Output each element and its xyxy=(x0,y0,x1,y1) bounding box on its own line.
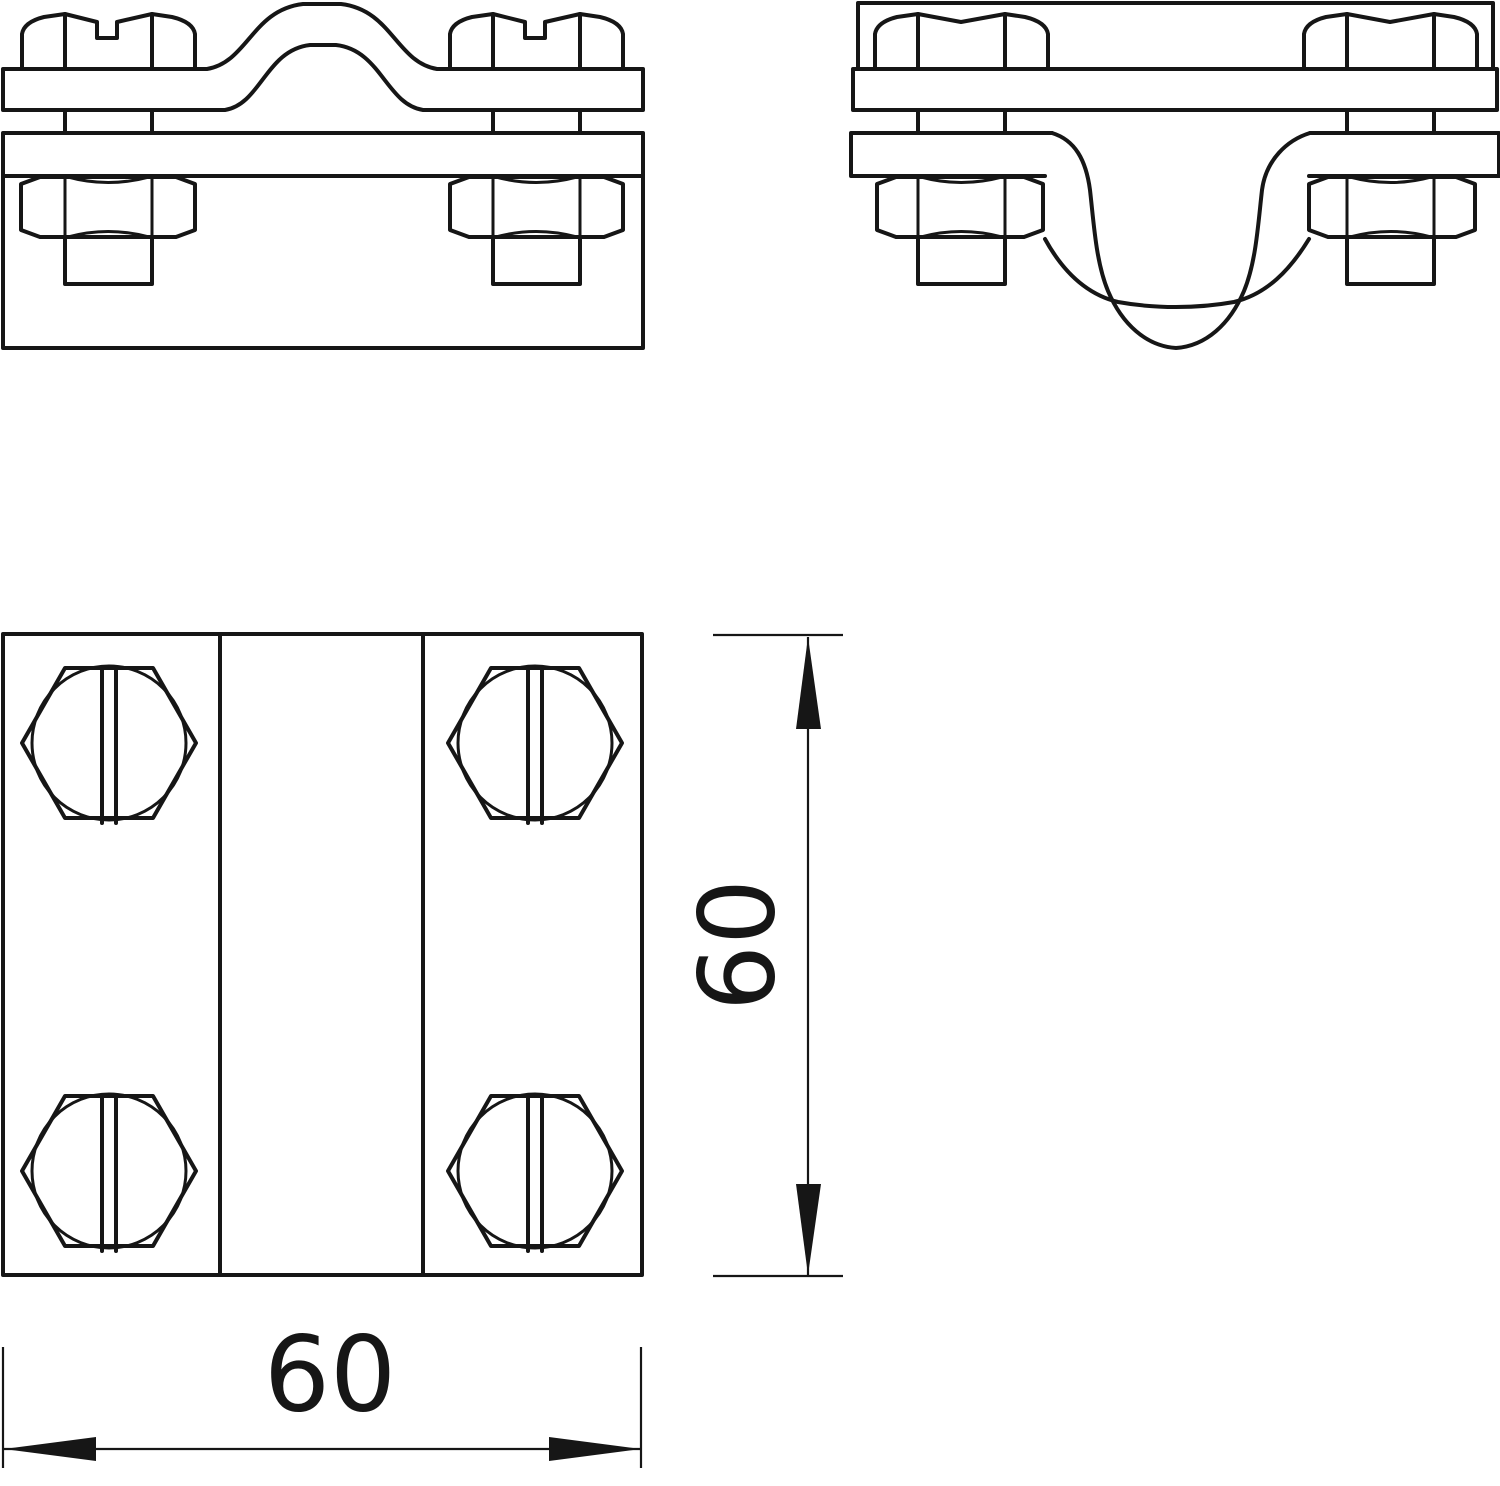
hex-screw-top xyxy=(22,666,196,823)
slotted-screw-head xyxy=(450,14,623,69)
hex-outline xyxy=(448,1096,622,1246)
clamp-body xyxy=(3,133,643,348)
bolt-shank-end xyxy=(493,237,580,284)
hex-nut xyxy=(450,177,623,237)
screw-head-facet-line xyxy=(65,14,152,69)
hex-nut-facet-line xyxy=(65,177,152,237)
screw-slot xyxy=(528,1095,542,1251)
hex-screw-head xyxy=(1304,14,1477,69)
technical-drawing-page: 60 60 xyxy=(0,0,1500,1486)
bolt-shank-end xyxy=(1347,237,1434,284)
hex-screw-head xyxy=(875,14,1048,69)
screw-circle xyxy=(458,666,612,820)
bolt-shank-end xyxy=(918,237,1005,284)
conductor-channel-line xyxy=(220,634,423,1275)
saddle-strap-edge xyxy=(858,3,1493,69)
u-strap-outer xyxy=(1052,133,1310,348)
screw-slot xyxy=(102,667,116,823)
arrowhead-down xyxy=(796,1184,821,1275)
screw-circle xyxy=(32,666,186,820)
top-plate xyxy=(853,69,1497,110)
screw-slot xyxy=(102,1095,116,1251)
hex-nut-facet-line xyxy=(493,177,580,237)
hex-nut-facet-line xyxy=(918,177,1005,237)
hex-outline xyxy=(22,668,196,818)
hex-outline xyxy=(448,668,622,818)
hex-nut-facet-line xyxy=(1347,177,1434,237)
hex-nut xyxy=(1309,177,1475,237)
screw-circle xyxy=(32,1094,186,1248)
slotted-screw-head xyxy=(22,14,195,69)
intermediate-plate xyxy=(851,133,1499,176)
clamp-drawing: 60 60 xyxy=(0,0,1500,1486)
arrowhead-right xyxy=(549,1437,641,1461)
height-dimension: 60 xyxy=(676,635,843,1276)
height-dimension-label: 60 xyxy=(676,879,798,1011)
hex-outline xyxy=(22,1096,196,1246)
hex-screw-top xyxy=(448,1094,622,1251)
u-strap-inner xyxy=(1045,239,1309,307)
bolt-shank xyxy=(918,110,1434,133)
hex-nut xyxy=(21,177,195,237)
arrowhead-left xyxy=(4,1437,96,1461)
base-plate-outline xyxy=(3,634,642,1275)
hex-nut xyxy=(877,177,1043,237)
width-dimension: 60 xyxy=(3,1313,641,1468)
hex-screw-top xyxy=(448,666,622,823)
screw-circle xyxy=(458,1094,612,1248)
screw-slot xyxy=(528,667,542,823)
bolt-shank-end xyxy=(65,237,152,284)
width-dimension-label: 60 xyxy=(264,1313,396,1435)
arrowhead-up xyxy=(796,637,821,729)
front-view xyxy=(3,4,643,348)
screw-head-facet-line xyxy=(493,14,580,69)
top-view xyxy=(3,634,642,1275)
side-view xyxy=(851,3,1499,348)
bolt-shank xyxy=(65,110,580,133)
hex-screw-top xyxy=(22,1094,196,1251)
